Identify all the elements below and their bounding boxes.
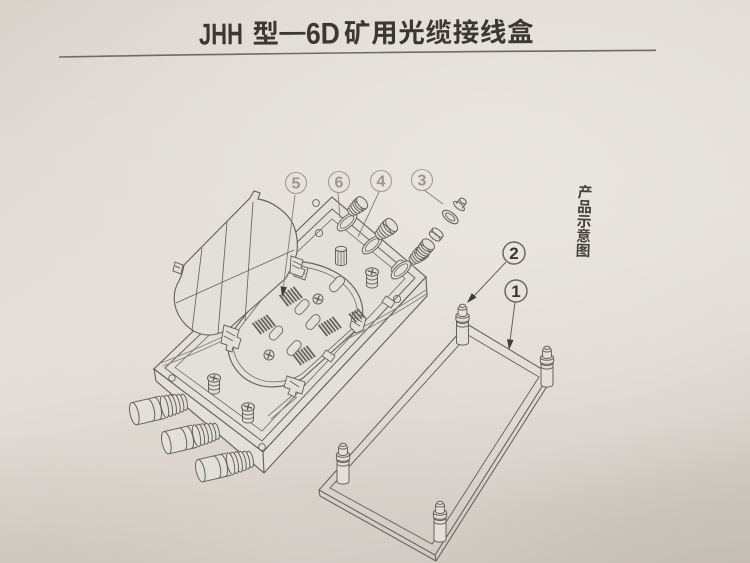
svg-text:6: 6 <box>335 175 344 192</box>
svg-text:3: 3 <box>418 173 427 190</box>
svg-text:4: 4 <box>377 174 386 191</box>
svg-text:2: 2 <box>509 244 518 263</box>
svg-text:JHH: JHH <box>199 18 243 51</box>
svg-text:6D: 6D <box>306 18 340 51</box>
svg-text:5: 5 <box>292 176 301 193</box>
svg-text:1: 1 <box>511 282 520 301</box>
